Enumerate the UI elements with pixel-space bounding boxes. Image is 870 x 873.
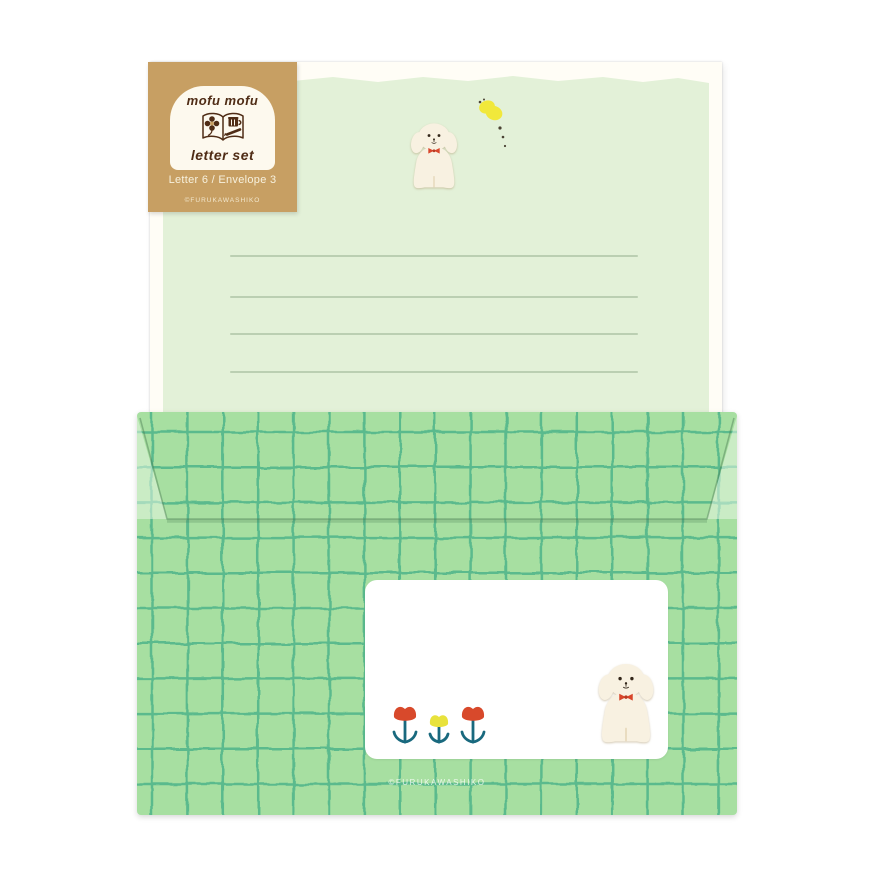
brand-tag-window: mofu mofu letter set (170, 86, 275, 170)
tag-contents-label: Letter 6 / Envelope 3 (148, 174, 297, 186)
brand-name: mofu mofu (187, 94, 259, 107)
product-photo: mofu mofu letter set Letter 6 / Envelope… (0, 0, 870, 873)
ruled-line (230, 333, 638, 335)
ruled-line (230, 296, 638, 298)
tag-copyright: ©FURUKAWASHIKO (148, 197, 297, 204)
envelope-copyright: ©FURUKAWASHIKO (137, 778, 737, 787)
yellow-butterfly-icon (474, 96, 508, 152)
brand-tag: mofu mofu letter set Letter 6 / Envelope… (148, 62, 297, 212)
ruled-line (230, 255, 638, 257)
open-book-with-flower-and-cup-icon (200, 109, 246, 145)
envelope: ©FURUKAWASHIKO (137, 412, 737, 815)
white-dog-illustration (402, 110, 466, 198)
ruled-line (230, 371, 638, 373)
address-label (365, 580, 668, 759)
tulip-flowers-icon (389, 704, 489, 748)
product-name: letter set (191, 148, 254, 162)
white-dog-illustration (588, 658, 664, 744)
